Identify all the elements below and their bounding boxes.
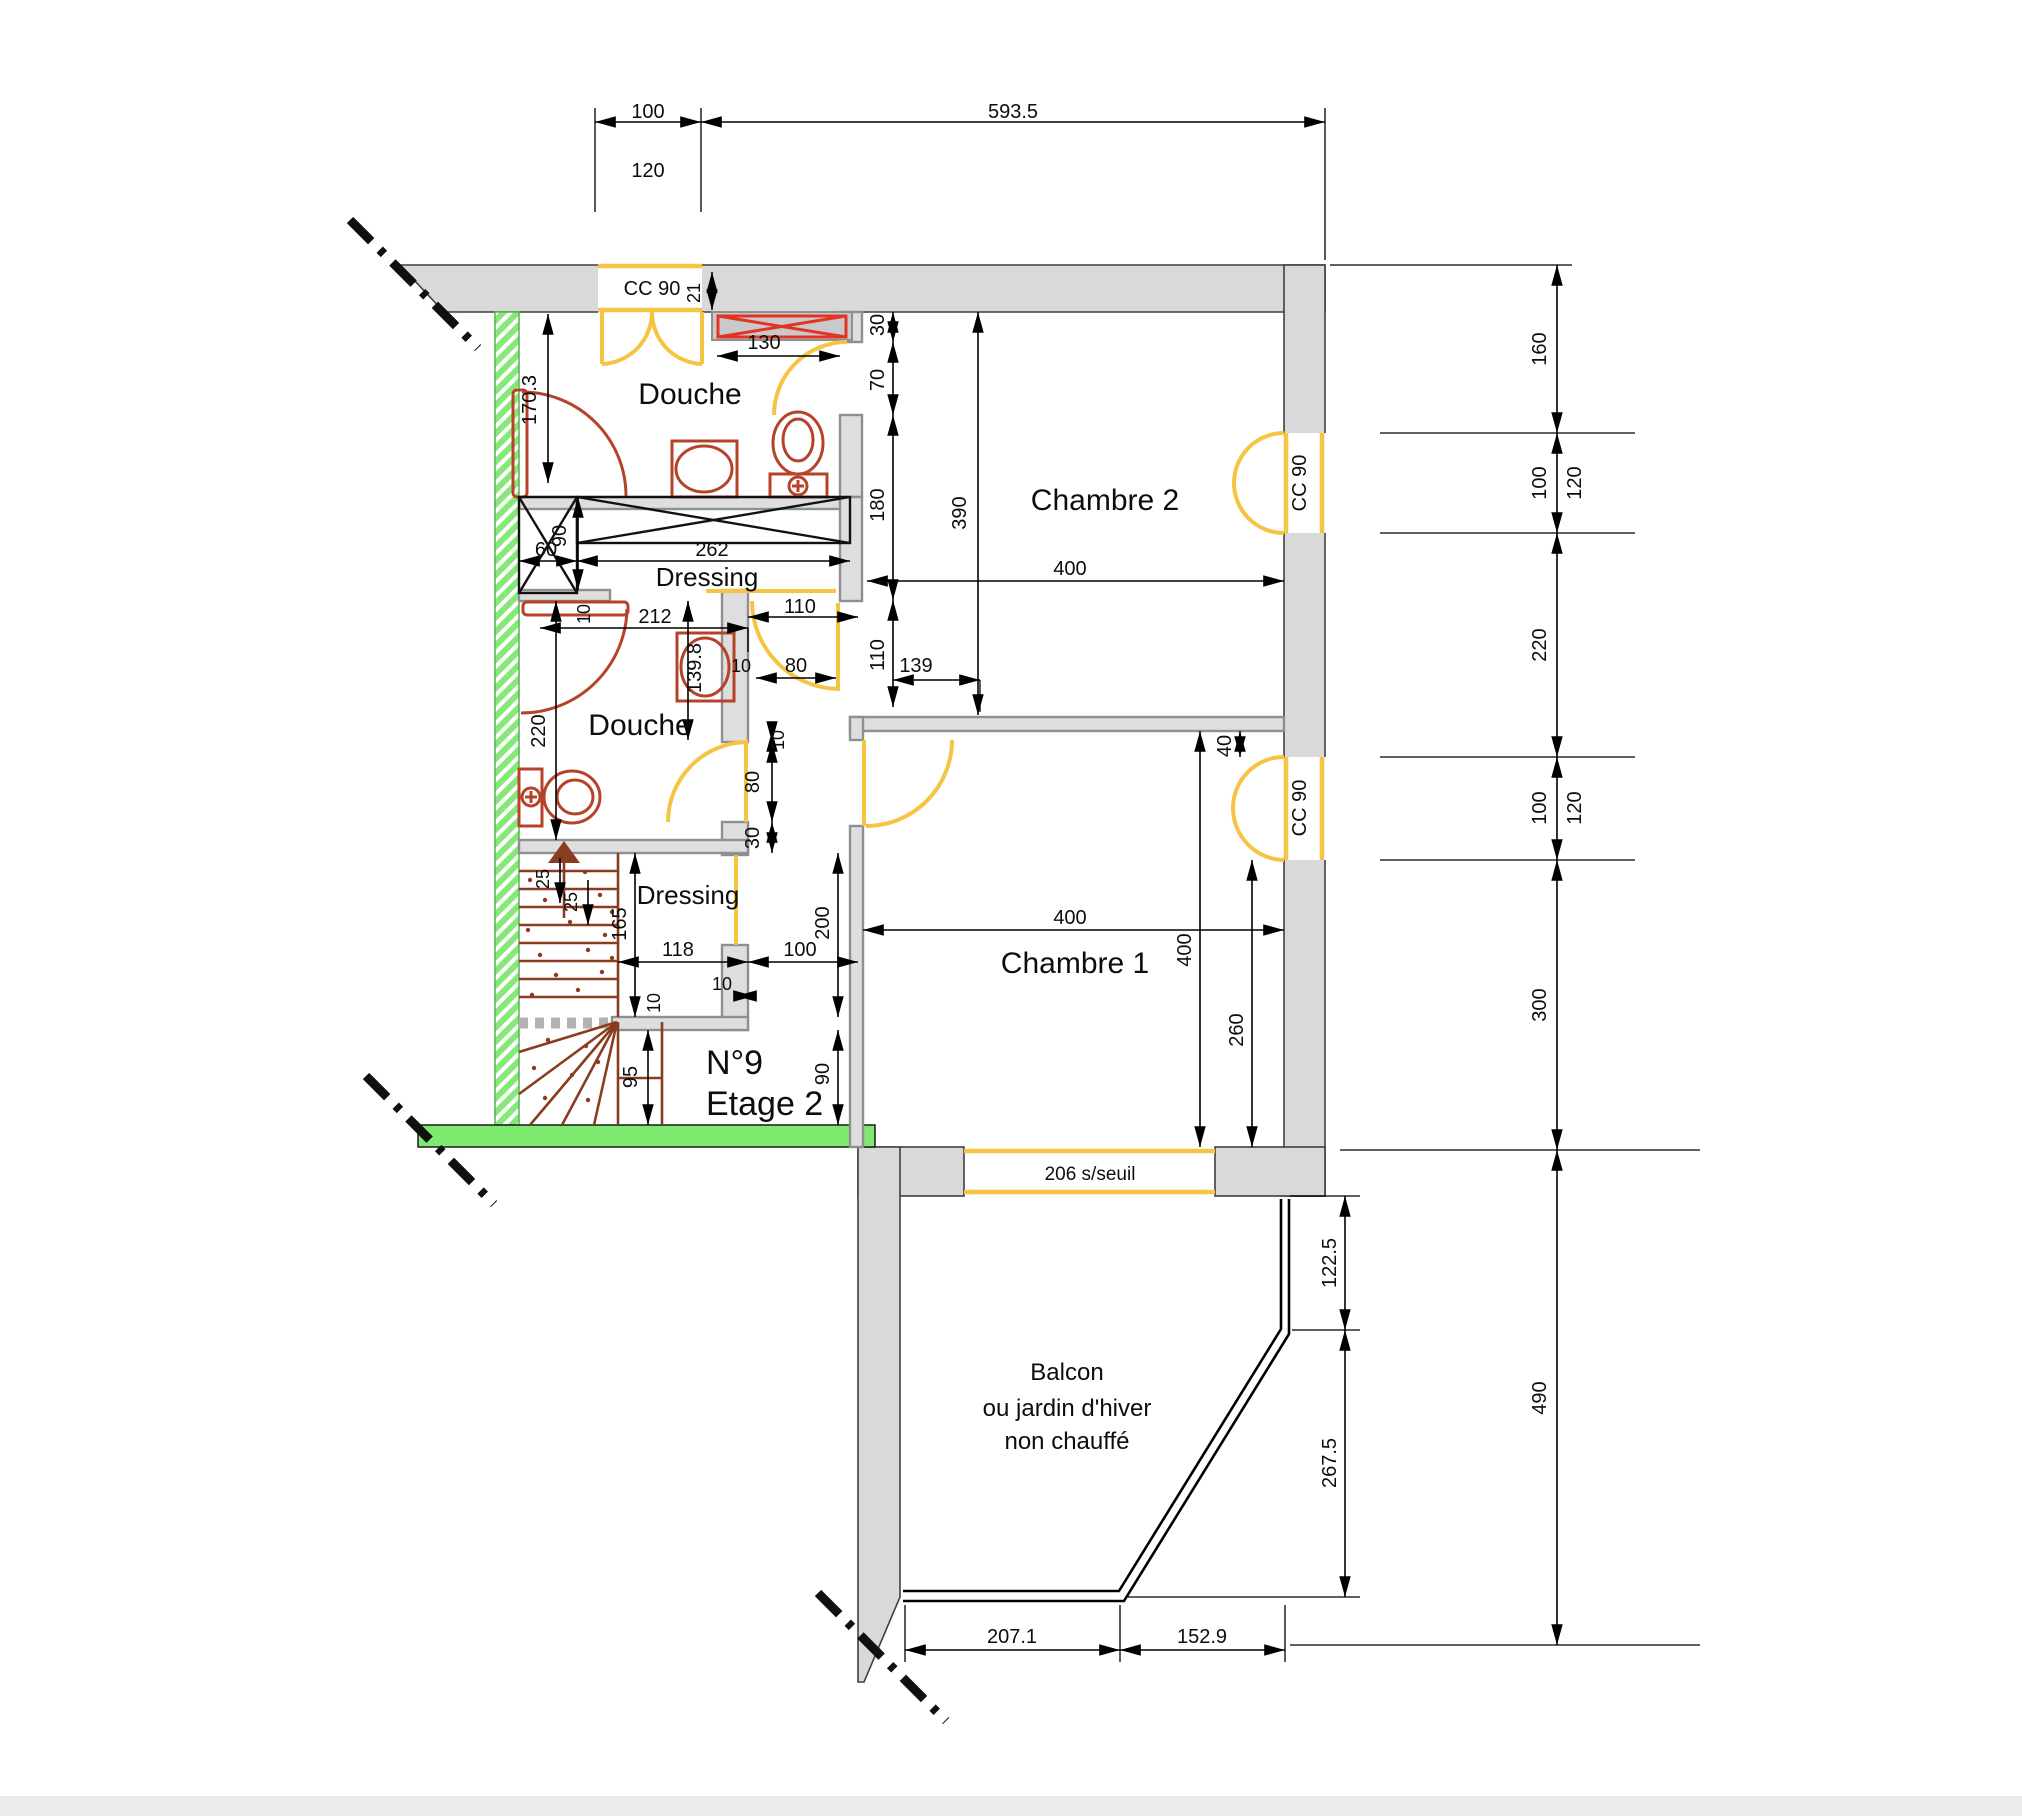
dim-label: 10	[768, 730, 788, 750]
door-tag: CC 90	[1289, 455, 1311, 512]
dim-label: 152.9	[1177, 1626, 1227, 1648]
wall-chambre1-top	[850, 717, 1284, 731]
dim-label: 267.5	[1319, 1438, 1341, 1488]
page-edge-strip	[0, 1796, 2022, 1816]
dim-label: 10	[731, 656, 751, 676]
dim-label: 100	[631, 101, 664, 123]
dim-label: 120	[631, 160, 664, 182]
wall-chambre1-left-a	[850, 717, 863, 740]
room-label-douche2: Douche	[588, 709, 691, 742]
dim-label: 390	[949, 496, 971, 529]
dim-label: 25	[533, 869, 553, 889]
floor-plan-svg: 100 593.5 120 160 100 120 220 100 120 30…	[0, 0, 2022, 1816]
dim-label: 25	[561, 892, 581, 912]
dim-label: 40	[1214, 735, 1236, 757]
wall-douche2-top	[519, 590, 610, 601]
dim-label: 10	[644, 993, 664, 1013]
room-label-douche1: Douche	[638, 378, 741, 411]
party-wall-hatched	[495, 312, 519, 1125]
balcony-label: non chauffé	[1004, 1428, 1129, 1455]
dim-label: 220	[528, 714, 550, 747]
dim-label: 212	[638, 606, 671, 628]
dim-label: 139.8	[684, 643, 706, 693]
dim-label: 95	[620, 1066, 642, 1088]
dim-label: 70	[867, 369, 889, 391]
balcony-label: Balcon	[1030, 1359, 1103, 1386]
dim-label: 118	[662, 939, 694, 961]
door-arc-icon	[774, 342, 847, 415]
dim-label: 260	[1226, 1013, 1248, 1046]
balcony-left-wall	[858, 1147, 900, 1682]
dim-label: 60	[535, 539, 557, 561]
unit-number-label: N°9	[706, 1044, 763, 1082]
dim-label: 110	[784, 596, 816, 618]
dim-label: 220	[1529, 628, 1551, 661]
unit-title: N°9 Etage 2	[706, 1044, 823, 1123]
dim-label: 400	[1053, 558, 1086, 580]
sink-icon	[672, 441, 737, 497]
dim-label: 30	[867, 314, 889, 336]
dim-label: 100	[783, 939, 816, 961]
dim-label: 139	[899, 655, 932, 677]
dim-label: 80	[785, 655, 807, 677]
dim-label: 122.5	[1319, 1238, 1341, 1288]
wall-dressing2-bottom	[612, 1017, 748, 1030]
room-label-dressing2: Dressing	[637, 880, 740, 910]
dim-label: 10	[574, 604, 594, 624]
door-tag: CC 90	[624, 278, 681, 300]
dim-label: 400	[1053, 907, 1086, 929]
dim-label: 400	[1174, 933, 1196, 966]
toilet-icon	[770, 412, 827, 497]
room-label-dressing1: Dressing	[656, 562, 759, 592]
dim-label: 160	[1529, 332, 1551, 365]
dim-label: 110	[867, 639, 889, 671]
floor-plan-page: 100 593.5 120 160 100 120 220 100 120 30…	[0, 0, 2022, 1816]
top-wall	[400, 265, 1325, 312]
dim-label: 30	[742, 827, 764, 849]
green-floor-band	[418, 1125, 875, 1147]
door-arc-icon	[1233, 757, 1284, 808]
dim-label: 262	[695, 539, 728, 561]
dim-label: 170.3	[519, 375, 541, 425]
toilet-icon	[519, 769, 600, 826]
dim-label: 100	[1529, 466, 1551, 499]
labels: 100 593.5 120 160 100 120 220 100 120 30…	[519, 101, 1586, 1648]
dim-label: 120	[1564, 466, 1586, 499]
dim-label: 80	[742, 771, 764, 793]
dim-label: 90	[812, 1063, 834, 1085]
unit-floor-label: Etage 2	[706, 1085, 823, 1123]
dim-label: 100	[1529, 791, 1551, 824]
dim-label: 200	[812, 906, 834, 939]
dim-label: 300	[1529, 988, 1551, 1021]
wall-douche1-right	[840, 415, 862, 497]
door-arc-icon	[866, 740, 952, 826]
dim-label: 120	[1564, 791, 1586, 824]
balcony-label: ou jardin d'hiver	[983, 1395, 1152, 1422]
room-label-chambre2: Chambre 2	[1031, 484, 1179, 517]
dim-label: 180	[867, 488, 889, 521]
door-arc-icon	[1233, 808, 1284, 860]
dim-label: 130	[747, 332, 780, 354]
door-arc-icon	[1234, 483, 1284, 533]
door-arc-icon	[1234, 433, 1284, 483]
dim-label: 21	[684, 283, 704, 303]
window-seuil-label: 206 s/seuil	[1045, 1164, 1136, 1185]
dim-label: 207.1	[987, 1626, 1037, 1648]
dim-label: 593.5	[988, 101, 1038, 123]
wall-douche2-bottom	[519, 840, 748, 853]
dim-label: 10	[712, 974, 732, 994]
right-wall	[1284, 265, 1325, 1196]
room-label-chambre1: Chambre 1	[1001, 947, 1149, 980]
bottom-wall-right	[1215, 1147, 1325, 1196]
dim-label: 165	[609, 907, 631, 940]
door-tag: CC 90	[1289, 780, 1311, 837]
door-arc-icon	[602, 312, 652, 364]
wall-chambre1-left-b	[850, 826, 863, 1147]
dim-label: 490	[1529, 1381, 1551, 1414]
door-arc-icon	[652, 312, 702, 364]
door-arc-icon	[668, 742, 748, 822]
